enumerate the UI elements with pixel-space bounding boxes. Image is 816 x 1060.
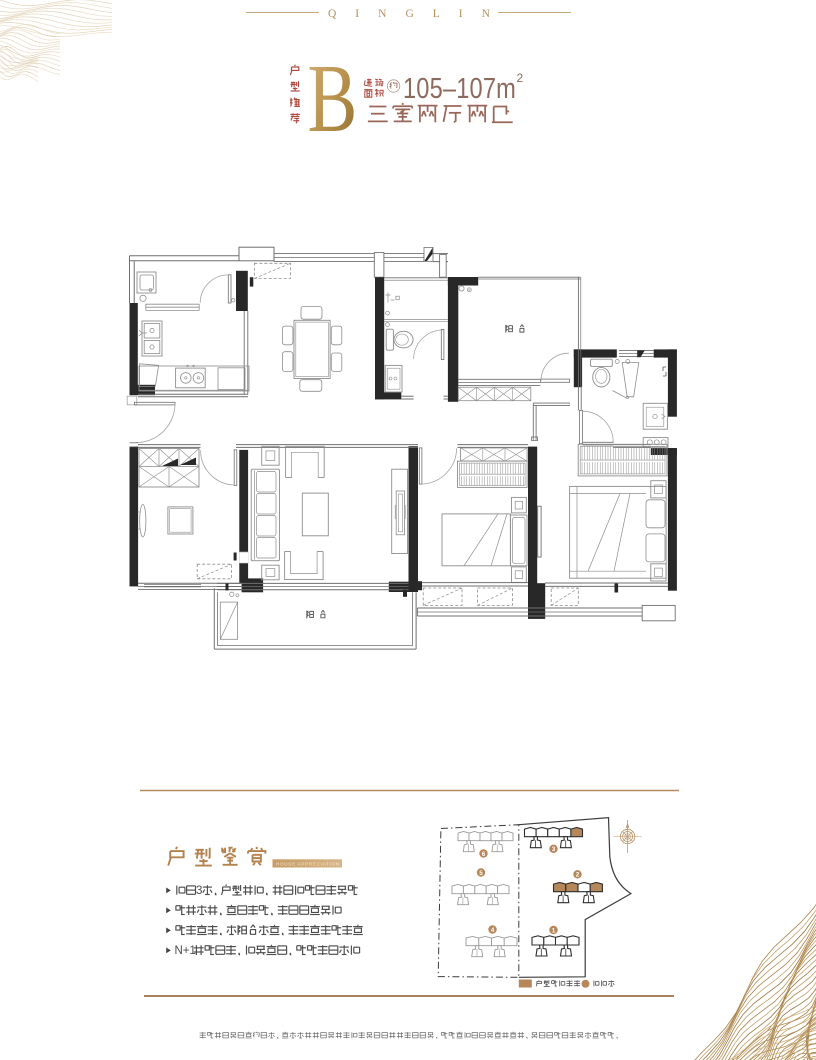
svg-text:HOUSE APPRECIATION: HOUSE APPRECIATION xyxy=(276,862,340,867)
svg-text:3: 3 xyxy=(552,846,556,853)
svg-text:3: 3 xyxy=(196,885,202,897)
svg-text:105–107m: 105–107m xyxy=(403,73,516,105)
svg-text:5: 5 xyxy=(479,870,483,877)
svg-text:6: 6 xyxy=(482,851,486,858)
svg-text:2: 2 xyxy=(576,872,580,879)
svg-text:B: B xyxy=(307,45,357,153)
svg-text:4: 4 xyxy=(491,927,495,934)
svg-text:N+1: N+1 xyxy=(175,945,196,957)
svg-text:2: 2 xyxy=(517,71,524,85)
svg-text:QINGLIN: QINGLIN xyxy=(328,8,509,20)
svg-text:1: 1 xyxy=(552,927,556,934)
